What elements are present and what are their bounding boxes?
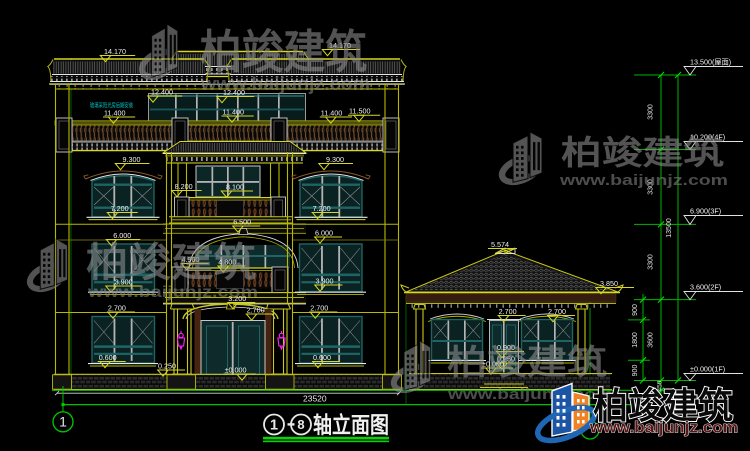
svg-text:www.baijunjz.com: www.baijunjz.com bbox=[589, 420, 738, 437]
svg-text:柏竣建筑: 柏竣建筑 bbox=[561, 134, 724, 171]
svg-text:3.900: 3.900 bbox=[316, 276, 334, 285]
svg-text:1: 1 bbox=[270, 418, 278, 434]
svg-text:0.600: 0.600 bbox=[99, 353, 117, 362]
svg-text:2.700: 2.700 bbox=[499, 307, 517, 316]
svg-text:6.900(3F): 6.900(3F) bbox=[690, 207, 721, 216]
svg-text:柏竣建筑: 柏竣建筑 bbox=[200, 26, 367, 78]
svg-text:11.500: 11.500 bbox=[349, 107, 370, 116]
svg-text:13500: 13500 bbox=[666, 218, 673, 238]
svg-text:11.400: 11.400 bbox=[321, 108, 342, 117]
svg-text:7.200: 7.200 bbox=[111, 204, 129, 213]
svg-text:5.574: 5.574 bbox=[491, 240, 509, 249]
svg-text:6.000: 6.000 bbox=[113, 231, 131, 240]
svg-text:8.100: 8.100 bbox=[226, 182, 244, 191]
svg-text:8.200: 8.200 bbox=[175, 182, 193, 191]
svg-text:0.600: 0.600 bbox=[313, 353, 331, 362]
svg-text:3300: 3300 bbox=[648, 254, 655, 270]
svg-text:6.000: 6.000 bbox=[315, 228, 333, 237]
svg-text:www.baijunjz.com: www.baijunjz.com bbox=[559, 172, 728, 189]
svg-text:12.400: 12.400 bbox=[151, 87, 173, 96]
svg-text:9.300: 9.300 bbox=[123, 155, 141, 164]
svg-text:3.850: 3.850 bbox=[600, 279, 618, 288]
svg-text:www.baijunjz.com: www.baijunjz.com bbox=[200, 74, 370, 94]
svg-text:2.700: 2.700 bbox=[247, 305, 265, 314]
svg-text:±0.000(1F): ±0.000(1F) bbox=[690, 365, 725, 374]
svg-text:www.baijunjz.com: www.baijunjz.com bbox=[87, 284, 258, 301]
svg-text:7.200: 7.200 bbox=[313, 204, 331, 213]
svg-text:11.400: 11.400 bbox=[104, 108, 125, 117]
svg-text:轴立面图: 轴立面图 bbox=[313, 412, 389, 438]
svg-text:2.700: 2.700 bbox=[108, 303, 126, 312]
svg-text:9.300: 9.300 bbox=[326, 155, 344, 164]
svg-text:900: 900 bbox=[632, 365, 639, 377]
svg-text:3600: 3600 bbox=[648, 332, 655, 348]
svg-text:13.500(屋面): 13.500(屋面) bbox=[690, 58, 731, 67]
svg-text:1: 1 bbox=[59, 414, 67, 430]
svg-text:6.500: 6.500 bbox=[233, 217, 251, 226]
svg-text:0.250: 0.250 bbox=[158, 361, 176, 370]
svg-text:900: 900 bbox=[632, 304, 639, 316]
svg-text:3.600(2F): 3.600(2F) bbox=[690, 283, 721, 292]
svg-text:2.700: 2.700 bbox=[310, 303, 328, 312]
svg-text:1800: 1800 bbox=[632, 332, 639, 348]
svg-text:2.700: 2.700 bbox=[548, 307, 566, 316]
svg-text:3300: 3300 bbox=[648, 104, 655, 120]
svg-text:11.400: 11.400 bbox=[223, 107, 244, 116]
svg-text:14.170: 14.170 bbox=[104, 47, 126, 56]
svg-text:柏竣建筑: 柏竣建筑 bbox=[86, 241, 256, 285]
svg-text:23520: 23520 bbox=[303, 394, 327, 404]
svg-text:8: 8 bbox=[297, 417, 304, 432]
svg-text:柏竣建筑: 柏竣建筑 bbox=[447, 343, 607, 382]
svg-text:±0.000: ±0.000 bbox=[225, 365, 247, 374]
